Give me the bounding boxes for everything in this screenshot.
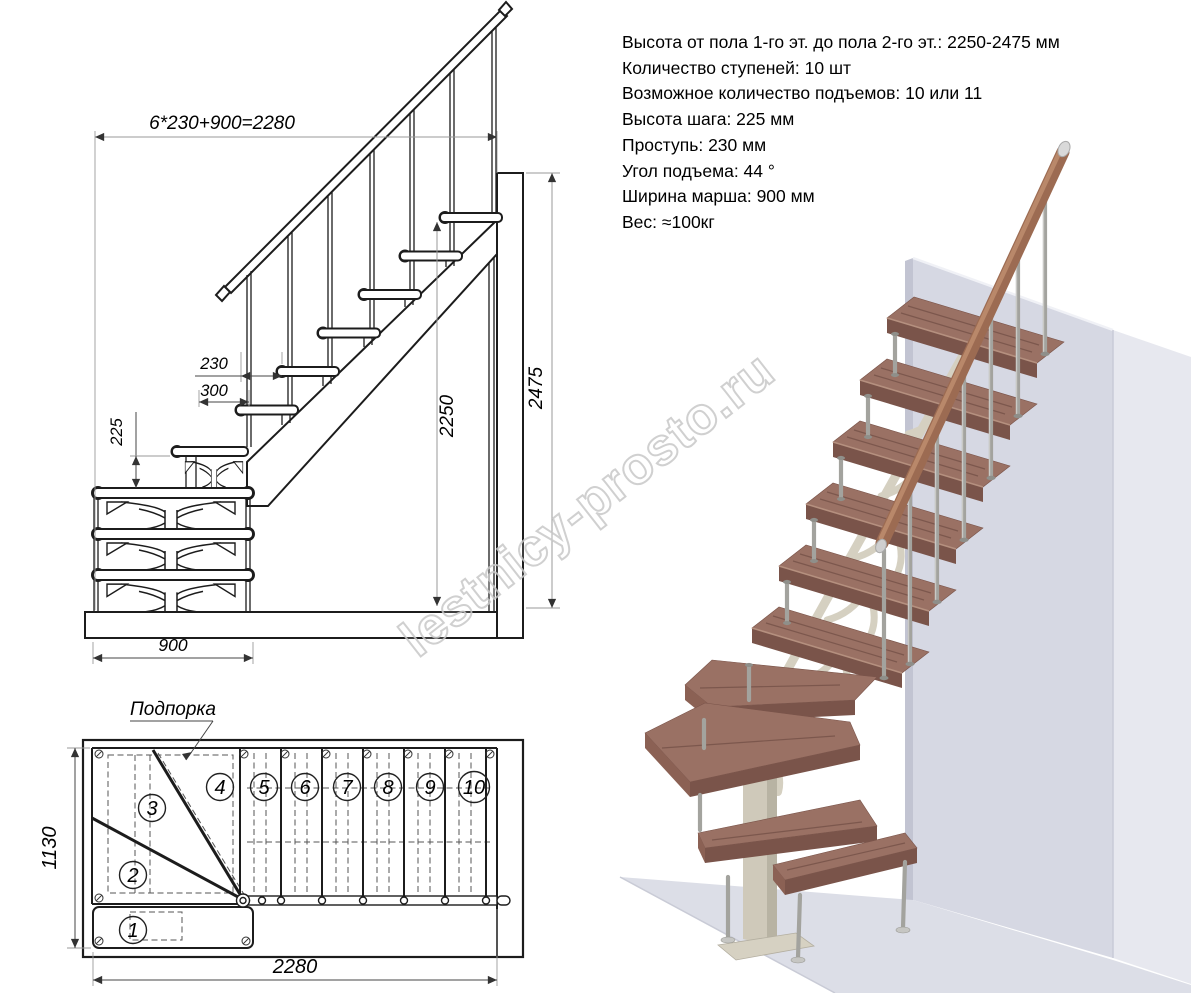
winder-platform-front-view <box>92 456 254 612</box>
spec-floor-height: Высота от пола 1-го эт. до пола 2-го эт.… <box>622 30 1142 56</box>
svg-text:6: 6 <box>299 777 311 799</box>
dim-tread-depth: 230 <box>199 355 228 373</box>
staircase-drawing-sheet: 6*230+900=2280 230 300 225 2250 2475 90 <box>0 0 1191 993</box>
step-badge: 8 <box>375 774 402 801</box>
spec-angle: Угол подъема: 44 ° <box>622 159 1142 185</box>
svg-text:7: 7 <box>341 777 353 799</box>
svg-text:4: 4 <box>214 777 225 799</box>
tread-supports <box>282 260 454 425</box>
step-divisions <box>240 748 486 896</box>
spec-tread: Проступь: 230 мм <box>622 133 1142 159</box>
spec-rise-count: Возможное количество подъемов: 10 или 11 <box>622 81 1142 107</box>
svg-text:1: 1 <box>127 920 138 942</box>
svg-text:8: 8 <box>382 777 393 799</box>
svg-text:3: 3 <box>146 798 157 820</box>
svg-text:9: 9 <box>424 777 435 799</box>
spec-step-height: Высота шага: 225 мм <box>622 107 1142 133</box>
dim-plan-length: 2280 <box>272 956 318 978</box>
plan-drawing: 1 2 3 4 5 6 7 8 9 10 Подпорка <box>0 690 600 993</box>
step-badge: 10 <box>459 772 490 803</box>
step-badge: 1 <box>120 917 147 944</box>
step-badge: 7 <box>334 774 361 801</box>
svg-text:2: 2 <box>126 865 138 887</box>
support-callout: Подпорка <box>130 699 216 760</box>
step-badge: 5 <box>251 774 278 801</box>
step-badge: 2 <box>120 862 147 889</box>
dim-total-run: 6*230+900=2280 <box>149 113 295 134</box>
wall <box>905 258 1191 984</box>
specs-panel: Высота от пола 1-го эт. до пола 2-го эт.… <box>622 30 1142 236</box>
svg-text:5: 5 <box>258 777 270 799</box>
step-badge: 6 <box>292 774 319 801</box>
dim-clear-height: 2250 <box>437 394 458 438</box>
dim-tread-width: 300 <box>200 382 228 400</box>
elevation-drawing: 6*230+900=2280 230 300 225 2250 2475 90 <box>0 0 600 690</box>
step-badge: 3 <box>139 795 166 822</box>
svg-text:10: 10 <box>463 777 485 799</box>
dim-total-height: 2475 <box>526 366 547 410</box>
support-label: Подпорка <box>130 699 216 720</box>
step-badge: 9 <box>417 774 444 801</box>
winder-tread <box>645 703 860 797</box>
spec-step-count: Количество ступеней: 10 шт <box>622 56 1142 82</box>
spec-weight: Вес: ≈100кг <box>622 210 1142 236</box>
dim-riser-height: 225 <box>108 417 126 446</box>
spec-march-width: Ширина марша: 900 мм <box>622 184 1142 210</box>
stringer <box>247 220 497 612</box>
dim-march-width: 900 <box>158 635 187 655</box>
dim-plan-depth: 1130 <box>39 826 61 869</box>
step-badge: 4 <box>207 774 234 801</box>
step-numbers: 1 2 3 4 5 6 7 8 9 10 <box>120 772 490 944</box>
